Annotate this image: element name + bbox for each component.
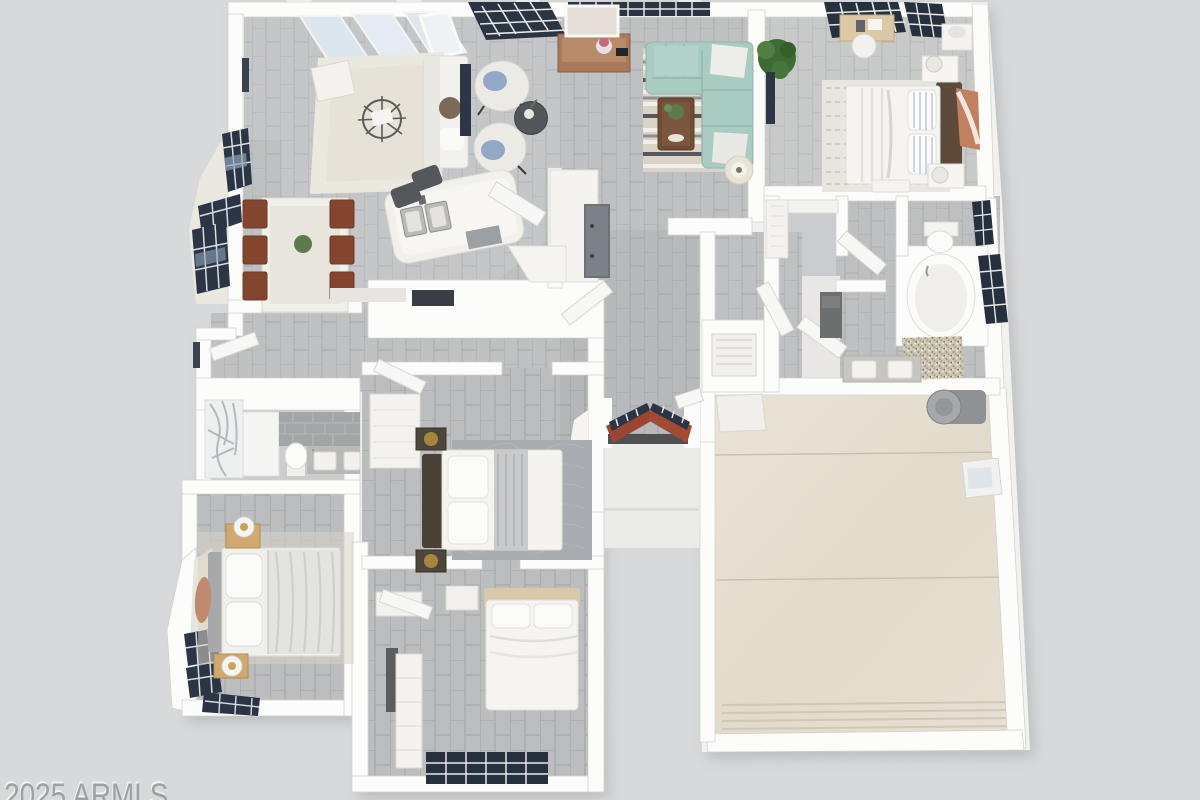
svg-text:2025 ARMLS: 2025 ARMLS: [4, 776, 168, 800]
